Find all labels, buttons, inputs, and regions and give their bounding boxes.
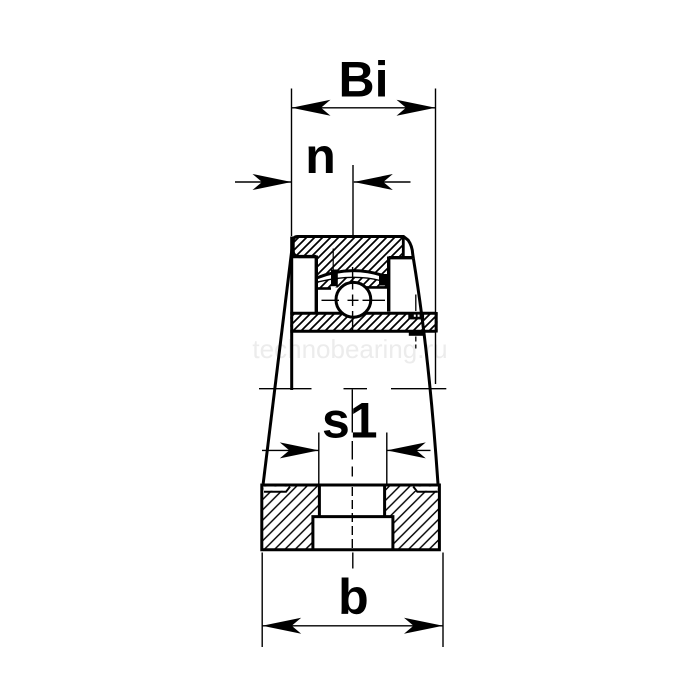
svg-text:Bi: Bi (339, 52, 389, 108)
svg-text:s1: s1 (322, 393, 378, 449)
svg-text:b: b (338, 569, 369, 625)
svg-text:n: n (305, 128, 336, 184)
